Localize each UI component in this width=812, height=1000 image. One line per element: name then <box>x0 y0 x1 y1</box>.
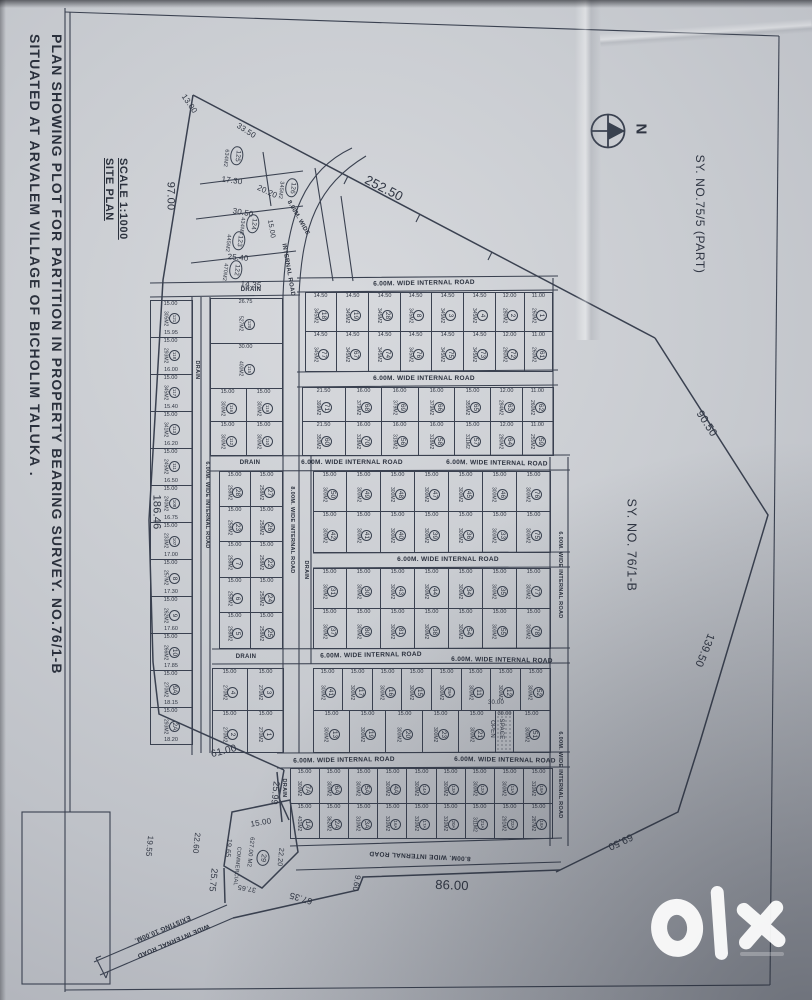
plot-number: 2 <box>507 310 518 321</box>
site-plan-photo: PLAN SHOWING PLOT FOR PARTITION IN PROPE… <box>0 0 812 1000</box>
plot-cell: 15.00300M246 <box>482 471 517 513</box>
plot-number: 80 <box>361 626 372 637</box>
plot-cell: 21.50399M271 <box>302 387 346 422</box>
plot-cell: 16.00379M266 <box>418 387 456 422</box>
drain-label: DRAIN <box>193 361 199 380</box>
plot-width-dim: 15.00 <box>492 569 506 575</box>
plot-number: 63 <box>504 402 515 413</box>
plot-depth-dim: 16.20 <box>164 441 178 448</box>
plot-width-dim: 14.50 <box>377 332 391 338</box>
plot-width-dim: 15.00 <box>391 569 405 575</box>
plot-width-dim: 15.00 <box>327 769 341 775</box>
dimension-label: 22.60 <box>191 832 201 854</box>
plot-cell: 15.00270M29A18.15 <box>150 670 193 708</box>
site-plan-label: SITE PLAN <box>103 158 115 221</box>
plot-width-dim: 12.00 <box>503 293 517 299</box>
plot-number: 18 <box>318 310 329 321</box>
plot-width-dim: 15.00 <box>380 669 394 675</box>
plot-area-label: 266M2 <box>163 645 169 660</box>
plot-cell: 15.00310M23A <box>348 803 378 839</box>
plot-width-dim: 15.00 <box>259 613 273 619</box>
plot-cell: 15.00293M211816.00 <box>150 337 193 375</box>
plot-width-dim: 15.00 <box>526 609 540 615</box>
plot-cell: 15.00270M24 <box>212 668 249 711</box>
plot-area-label: 300M2 <box>355 781 361 796</box>
plot-cell: 11.00255M259 <box>522 421 554 456</box>
plot-cell: 15.00300M241 <box>346 511 381 553</box>
plot-width-dim: 15.00 <box>221 389 235 395</box>
plot-width-dim: 30.00 <box>497 711 511 717</box>
plot-width-dim: 15.00 <box>439 669 453 675</box>
plot-number: 54 <box>463 626 474 637</box>
plot-width-dim: 15.00 <box>466 422 480 428</box>
plot-cell: 15.00300M230 <box>346 568 381 609</box>
plot-area-label: 258M2 <box>258 591 264 606</box>
plot-width-dim: 11.00 <box>531 388 544 394</box>
plot-number: 6 <box>232 593 243 604</box>
plot-width-dim: 15.00 <box>473 769 487 775</box>
plot-cell: 15.00258M223 <box>219 506 252 542</box>
plot-number: 31 <box>327 586 338 597</box>
plot-number: 22A <box>507 819 518 830</box>
plot-cell: 15.00311M257 <box>454 421 490 456</box>
plot-number: 64 <box>504 436 515 447</box>
plot-number: 37 <box>327 626 338 637</box>
plot-width-dim: 15.00 <box>458 472 472 478</box>
plot-block: 15.00300M24115.00300M21715.00300M21615.0… <box>313 668 550 752</box>
plot-width-dim: 14.50 <box>441 332 455 338</box>
road-label: 6.00M. WIDE INTERNAL ROAD <box>556 531 562 618</box>
plot-cell: 15.00300M27A <box>290 768 320 804</box>
plot-number: 76 <box>531 489 542 500</box>
plot-width-dim: 15.00 <box>492 609 506 615</box>
plot-width-dim: 12.00 <box>499 422 513 428</box>
plot-number: 117 <box>169 387 180 398</box>
plot-number: 47 <box>429 489 440 500</box>
plot-number: 38 <box>429 626 440 637</box>
plot-cell: 15.00300M220 <box>385 710 422 753</box>
plot-number: 2A <box>331 819 342 830</box>
plot-number: 20A <box>448 819 459 830</box>
plot-number: 45 <box>463 489 474 500</box>
plot-number: 7A <box>302 784 313 795</box>
plot-width-dim: 16.00 <box>393 422 407 428</box>
plot-width-dim: 15.00 <box>391 512 405 518</box>
road-label: 6.00M. WIDE INTERNAL ROAD <box>556 731 562 818</box>
plot-depth-dim: 16.50 <box>164 478 178 485</box>
plot-cell: 14.50345M267 <box>336 331 369 372</box>
plot-width-dim: 15.00 <box>525 711 539 717</box>
plot-area-label: 240M2 <box>163 496 169 511</box>
plot-width-dim: 15.00 <box>164 597 178 603</box>
olx-subtext <box>740 952 784 956</box>
plot-width-dim: 15.00 <box>323 472 337 478</box>
plot-number: 39 <box>429 530 440 541</box>
plot-cell: 15.00362M22A <box>319 803 349 839</box>
plot-number: 42 <box>327 530 338 541</box>
plot-number: 75 <box>531 530 542 541</box>
plot-cell: 14.50345M228 <box>368 292 401 333</box>
plot-number: 11A <box>507 784 518 795</box>
plot-area-label: 270M2 <box>163 682 169 697</box>
plot-width-dim: 15.00 <box>492 512 506 518</box>
plot-number: 2 <box>227 729 238 740</box>
drain-label: DRAIN <box>241 287 262 293</box>
plot-width-dim: 15.00 <box>492 472 506 478</box>
plot-number: 8 <box>169 573 180 584</box>
plot-number: 21A <box>477 819 488 830</box>
plot-area-label: 262M2 <box>163 608 169 623</box>
plot-area-label: 280M2 <box>498 434 504 449</box>
plot-width-dim: 15.00 <box>425 472 439 478</box>
plot-cell: 15.00300M238 <box>414 608 449 649</box>
plot-width-dim: 26.75 <box>239 299 253 305</box>
plan-title-line1: PLAN SHOWING PLOT FOR PARTITION IN PROPE… <box>49 34 65 675</box>
plot-number: 112 <box>226 436 237 447</box>
plot-width-dim: 15.00 <box>357 609 371 615</box>
plot-width-dim: 15.00 <box>223 711 237 717</box>
plot-cell: 15.00305M212115.95 <box>150 300 193 338</box>
dimension-label: 186.46 <box>151 495 162 530</box>
plot-width-dim: 15.00 <box>528 669 542 675</box>
plot-cell: 15.00300M247 <box>414 471 449 513</box>
plot-depth-dim: 16.00 <box>164 367 178 374</box>
plot-area-label: 300M2 <box>491 624 497 639</box>
dimension-label: 25.99 <box>269 781 280 805</box>
plot-cell: 14.50345M23 <box>431 292 464 333</box>
plot-area-label: 233M2 <box>163 533 169 548</box>
plot-width-dim: 15.00 <box>164 375 178 381</box>
plot-cell: 12.00280M272 <box>495 331 525 372</box>
plot-area-label: 300M2 <box>438 685 444 700</box>
plot-cell: 12.00280M264 <box>490 421 523 456</box>
plot-number: 78 <box>531 626 542 637</box>
plot-number: 40 <box>395 530 406 541</box>
plot-cell: 15.00300M214A <box>406 768 436 804</box>
plot-number: 19 <box>365 729 376 740</box>
plot-area-label: 300M2 <box>220 434 226 449</box>
plot-number: 118 <box>169 350 180 361</box>
plot-width-dim: 15.00 <box>473 804 487 810</box>
plot-number: 9A <box>169 684 180 695</box>
plot-area-label: 300M2 <box>491 528 497 543</box>
plot-number: 113 <box>169 424 180 435</box>
plot-area-label: 318M2 <box>355 434 361 449</box>
plot-depth-dim: 16.75 <box>164 515 178 522</box>
plot-number: 34 <box>463 586 474 597</box>
plot-width-dim: 15.00 <box>531 804 545 810</box>
plot-cell: 15.00300M26A <box>319 768 349 804</box>
plot-cell: 15.00300M211 <box>461 668 492 711</box>
plot-number: 62 <box>535 402 546 413</box>
plot-cell: 15.00258M227 <box>250 471 283 507</box>
road-label: 6.00M. WIDE INTERNAL ROAD <box>397 557 499 564</box>
plot-number: 21 <box>474 729 485 740</box>
plot-width-dim: 15.00 <box>425 512 439 518</box>
plot-area-label: 310M2 <box>384 816 390 831</box>
road-label: 6.00M. WIDE INTERNAL ROAD <box>203 461 209 548</box>
plot-cell: 15.00300M216 <box>372 668 403 711</box>
plot-number: 4 <box>477 310 488 321</box>
plot-number: 59 <box>535 436 546 447</box>
plot-number: 16A <box>390 819 401 830</box>
plot-number: 77 <box>318 349 329 360</box>
plot-cell: 21.50350M260 <box>302 421 346 456</box>
plot-width-dim: 15.00 <box>466 388 480 394</box>
plot-width-dim: 15.00 <box>357 472 371 478</box>
plot-area-label: 258M2 <box>258 626 264 641</box>
plot-cell: 15.00266M21017.85 <box>150 633 193 671</box>
plot-cell: 15.00258M225 <box>250 612 283 648</box>
plot-block: 15.00300M25015.00300M24915.00300M24815.0… <box>313 471 550 552</box>
plot-cell: 16.00318M258 <box>418 421 456 456</box>
plot-area-label: 300M2 <box>491 487 497 502</box>
plot-number: 17 <box>355 687 366 698</box>
plot-width-dim: 16.00 <box>430 422 444 428</box>
plot-cell: 12.00280M22 <box>495 292 525 333</box>
plot-width-dim: 15.00 <box>259 472 273 478</box>
plot-number: 13 <box>329 729 340 740</box>
plot-number: 108 <box>169 498 180 509</box>
plot-number: 71 <box>321 402 332 413</box>
plot-area-label: 300M2 <box>525 584 531 599</box>
plot-width-dim: 15.00 <box>298 804 312 810</box>
plot-cell: 15.00258M224 <box>250 577 283 613</box>
plot-number: 5 <box>232 628 243 639</box>
plot-cell: 15.00300M244 <box>414 568 449 609</box>
plot-cell: 14.50345M24 <box>463 292 496 333</box>
plot-area-label: 300M2 <box>384 781 390 796</box>
plot-width-dim: 15.00 <box>351 669 365 675</box>
plot-number: 74 <box>382 349 393 360</box>
plot-cell: 15.00300M229A <box>431 668 462 711</box>
plot-block: 15.00270M2415.00270M2315.00270M2215.0027… <box>212 668 283 752</box>
plot-width-dim: 15.00 <box>164 449 178 455</box>
plot-width-dim: 15.00 <box>385 804 399 810</box>
plot-area-label: 300M2 <box>525 624 531 639</box>
plot-number: 110 <box>262 436 273 447</box>
plot-cell: 15.00300M2110 <box>246 421 283 456</box>
plot-cell: 15.00287M218A <box>523 803 553 839</box>
plot-number: 3 <box>263 687 274 698</box>
plot-cell: 15.00300M241 <box>313 668 344 711</box>
plot-block: 15.00258M22815.00258M22715.00258M22315.0… <box>219 471 282 648</box>
plot-cell: 15.00300M212A <box>465 768 495 804</box>
plot-cell: 15.00300M280 <box>346 608 381 649</box>
drain-label: DRAIN <box>302 561 308 580</box>
plot-cell: 16.00318M270 <box>345 421 383 456</box>
plot-width-dim: 15.00 <box>164 672 178 678</box>
plot-block: 15.00300M211615.00300M211915.00300M21121… <box>210 388 282 455</box>
plot-cell: 14.50345M219 <box>336 292 369 333</box>
plot-width-dim: 15.00 <box>258 711 272 717</box>
compass-north-label: N <box>634 123 649 134</box>
plot-area-label: 293M2 <box>163 348 169 363</box>
road-label: 6.00M. WIDE INTERNAL ROAD <box>301 460 403 467</box>
plot-width-dim: 11.00 <box>532 293 545 299</box>
plot-number: 18A <box>536 819 547 830</box>
plot-cell: 15.00300M2116 <box>210 388 247 423</box>
plot-number: 41 <box>325 687 336 698</box>
plot-width-dim: 15.00 <box>228 543 242 549</box>
plot-area-label: 300M2 <box>256 434 262 449</box>
plot-area-label: 257M2 <box>163 570 169 585</box>
plot-number: 1 <box>536 310 547 321</box>
plot-area-label: 445M2 <box>223 234 230 252</box>
plot-width-dim: 15.00 <box>458 512 472 518</box>
plot-width-dim: 15.00 <box>257 422 271 428</box>
olx-bar-icon <box>710 886 728 961</box>
plot-width-dim: 15.00 <box>164 301 178 307</box>
plot-cell: 15.00300M223 <box>422 710 459 753</box>
plot-area-label: 287M2 <box>530 816 536 831</box>
plot-width-dim: 15.00 <box>164 709 178 715</box>
plot-number: 3 <box>445 310 456 321</box>
plot-number: 1A <box>302 819 313 830</box>
plot-number: 41 <box>361 530 372 541</box>
plot-area-label: 270M2 <box>257 685 263 700</box>
plot-area-label: 345M2 <box>471 347 477 362</box>
plot-area-label: 300M2 <box>457 487 463 502</box>
plot-width-dim: 15.00 <box>357 512 371 518</box>
plot-number: 65 <box>470 402 481 413</box>
plot-width-dim: 15.00 <box>469 669 483 675</box>
plot-cell: 15.00300M277 <box>516 568 551 609</box>
plot-cell: 15.00258M226 <box>250 506 283 542</box>
plot-number: 69 <box>397 402 408 413</box>
plot-width-dim: 14.50 <box>346 293 360 299</box>
plot-area-label: 291M2 <box>501 816 507 831</box>
plot-width-dim: 15.00 <box>444 804 458 810</box>
plot-cell: 15.00300M250 <box>313 471 348 513</box>
dimension-label: OPEN <box>489 720 495 738</box>
plot-number: 55 <box>497 626 508 637</box>
plot-cell: 15.00300M2119 <box>246 388 283 423</box>
plan-title-line2: SITUATED AT ARVALEM VILLAGE OF BICHOLIM … <box>27 34 43 477</box>
plot-cell: 15.00245M211116.50 <box>150 448 193 486</box>
plot-cell: 15.00300M281 <box>380 608 415 649</box>
plot-number: 29A <box>444 687 455 698</box>
plot-width-dim: 15.00 <box>164 523 178 529</box>
plot-number: 76 <box>413 349 424 360</box>
plot-number: 67 <box>350 349 361 360</box>
plot-cell: 26.75527M2120 <box>210 298 283 344</box>
plot-width-dim: 15.00 <box>321 669 335 675</box>
plot-cell: 15.00300M25A <box>348 768 378 804</box>
plot-cell: 15.00258M26 <box>219 577 252 613</box>
plot-number: 75 <box>445 349 456 360</box>
plot-cell: 15.00300M255 <box>482 608 517 649</box>
plot-cell: 15.00300M24A <box>377 768 407 804</box>
plot-width-dim: 14.50 <box>314 293 328 299</box>
plot-number: 56 <box>397 436 408 447</box>
plot-width-dim: 15.00 <box>458 569 472 575</box>
plot-number: 4 <box>227 687 238 698</box>
plot-area-label: 258M2 <box>258 485 264 500</box>
plot-number: 1 <box>263 729 274 740</box>
plot-cell: 15.00300M251 <box>513 710 550 753</box>
plot-width-dim: 15.00 <box>298 769 312 775</box>
dimension-label: 30.00 <box>488 700 504 706</box>
plot-number: 116 <box>226 403 237 414</box>
plot-area-label: 379M2 <box>355 400 361 415</box>
plot-width-dim: 15.00 <box>164 560 178 566</box>
plot-number: 107 <box>169 536 180 547</box>
plot-block: 15.00300M23115.00300M23015.00300M24315.0… <box>313 568 550 648</box>
plot-number: 30 <box>361 586 372 597</box>
plot-area-label: 258M2 <box>258 555 264 570</box>
plot-area-label: 634M2 <box>221 149 228 167</box>
plot-width-dim: 14.50 <box>346 332 360 338</box>
plot-number: 43 <box>395 586 406 597</box>
plot-area-label: 345M2 <box>276 181 283 199</box>
plot-width-dim: 15.00 <box>257 389 271 395</box>
plot-number: 8 <box>413 310 424 321</box>
plot-cell: 15.00355M265 <box>454 387 490 422</box>
plot-cell: 15.00300M215 <box>401 668 432 711</box>
plot-number: 36 <box>463 530 474 541</box>
scale-label: SCALE 1:1000 <box>117 158 129 240</box>
plot-width-dim: 15.00 <box>385 769 399 775</box>
plot-number: 81 <box>395 626 406 637</box>
plot-cell: 14.50345M275 <box>431 331 464 372</box>
plot-number: 16 <box>385 687 396 698</box>
plot-cell: 15.00293M22A18.20 <box>150 707 193 745</box>
plot-cell: 15.00300M235 <box>482 568 517 609</box>
plot-number: 6A <box>331 784 342 795</box>
plot-width-dim: 11.00 <box>532 332 545 338</box>
plot-number: 23 <box>438 729 449 740</box>
plot-width-dim: 15.00 <box>391 472 405 478</box>
plot-cell: 15.00258M25 <box>219 612 252 648</box>
plot-width-dim: 15.00 <box>223 669 237 675</box>
plot-cell: 15.00262M2917.60 <box>150 596 193 634</box>
drain-label: DRAIN <box>280 779 286 798</box>
plot-block: 26.75527M212030.00400M2115 <box>210 298 282 388</box>
plot-width-dim: 15.00 <box>164 338 178 344</box>
plot-depth-dim: 15.95 <box>164 330 178 337</box>
drain-label: DRAIN <box>236 654 257 660</box>
plot-width-dim: 15.00 <box>391 609 405 615</box>
plot-number: 48 <box>395 489 406 500</box>
plot-depth-dim: 18.20 <box>164 737 178 744</box>
plot-width-dim: 15.00 <box>221 422 235 428</box>
plot-number: 12A <box>477 784 488 795</box>
plot-width-dim: 15.00 <box>531 769 545 775</box>
plot-width-dim: 21.50 <box>317 388 331 394</box>
plot-area-label: 270M2 <box>257 727 263 742</box>
plot-area-label: 300M2 <box>501 781 507 796</box>
plot-number: 33 <box>497 530 508 541</box>
plot-number: 23 <box>232 522 243 533</box>
plot-number: 111 <box>169 461 180 472</box>
plot-cell: 15.00300M236 <box>448 511 483 553</box>
plot-number: 35 <box>497 586 508 597</box>
plot-number: 7 <box>232 558 243 569</box>
plot-cell: 11.00260M21 <box>524 292 553 333</box>
plot-area-label: 345M2 <box>376 308 382 323</box>
plot-number: 19A <box>536 784 547 795</box>
plot-number: 2A <box>169 721 180 732</box>
plot-number: 27 <box>264 487 275 498</box>
plot-cell: 16.00318M256 <box>381 421 419 456</box>
plot-cell: 14.50345M28 <box>400 292 433 333</box>
plot-width-dim: 15.00 <box>458 609 472 615</box>
plot-width-dim: 15.00 <box>470 711 484 717</box>
plot-cell: 15.00300M211A <box>494 768 524 804</box>
plot-cell: 15.00300M245 <box>448 471 483 513</box>
plot-cell: 15.00311M221A <box>465 803 495 839</box>
